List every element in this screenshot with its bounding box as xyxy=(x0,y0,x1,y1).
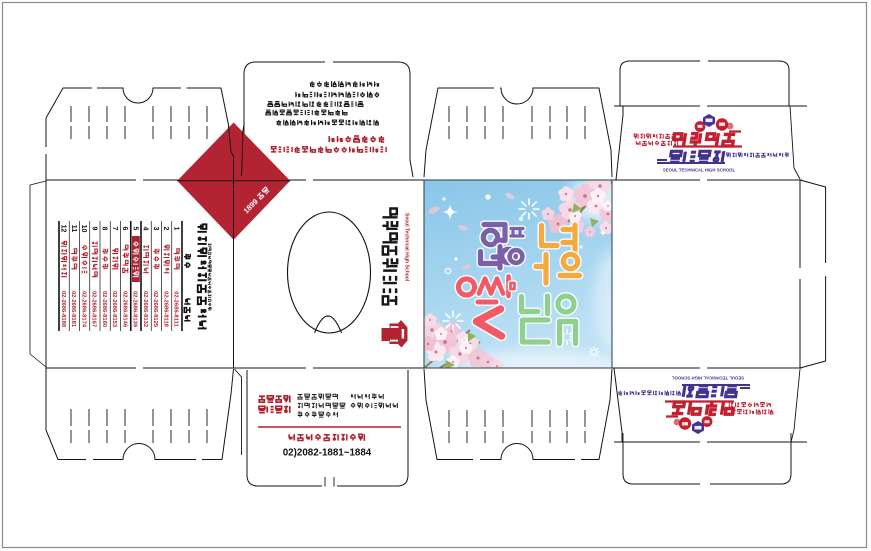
svg-text:SEOUL TECHNICAL HIGH SCHOOL: SEOUL TECHNICAL HIGH SCHOOL xyxy=(672,376,745,381)
svg-text:4: 4 xyxy=(142,227,149,231)
svg-text:02-2686-8181: 02-2686-8181 xyxy=(70,291,76,328)
svg-text:02)2082-1881~1884: 02)2082-1881~1884 xyxy=(283,448,372,459)
svg-text:02-2686-8153: 02-2686-8153 xyxy=(111,291,117,328)
svg-text:02-2686-8132: 02-2686-8132 xyxy=(142,291,148,327)
svg-text:02-2686-8160: 02-2686-8160 xyxy=(101,291,107,327)
svg-text:10: 10 xyxy=(80,225,87,233)
svg-text:02-2686-8125: 02-2686-8125 xyxy=(152,291,158,328)
svg-text:02-2686-8118: 02-2686-8118 xyxy=(162,291,168,328)
svg-text:3: 3 xyxy=(152,227,159,231)
svg-text:02-2686-8188: 02-2686-8188 xyxy=(60,291,66,328)
svg-text:Seoul Technical High School: Seoul Technical High School xyxy=(404,213,410,282)
svg-text:02-2686-8111: 02-2686-8111 xyxy=(173,291,179,327)
svg-text:02-2686-8139: 02-2686-8139 xyxy=(132,291,138,328)
svg-text:5: 5 xyxy=(131,227,138,231)
svg-text:02-2686-8174: 02-2686-8174 xyxy=(80,291,86,328)
svg-text:9: 9 xyxy=(90,227,97,231)
svg-text:02-2686-8146: 02-2686-8146 xyxy=(121,291,127,328)
svg-text:8: 8 xyxy=(101,227,108,231)
svg-text:11: 11 xyxy=(70,225,77,233)
svg-text:7: 7 xyxy=(111,227,118,231)
svg-text:02-2686-8167: 02-2686-8167 xyxy=(91,291,97,327)
svg-text:2: 2 xyxy=(162,227,169,231)
svg-text:12: 12 xyxy=(60,225,67,233)
svg-text:SEOUL TECHNICAL HIGH SCHOOL: SEOUL TECHNICAL HIGH SCHOOL xyxy=(663,168,736,173)
svg-text:6: 6 xyxy=(121,227,128,231)
svg-text:1: 1 xyxy=(172,227,179,231)
